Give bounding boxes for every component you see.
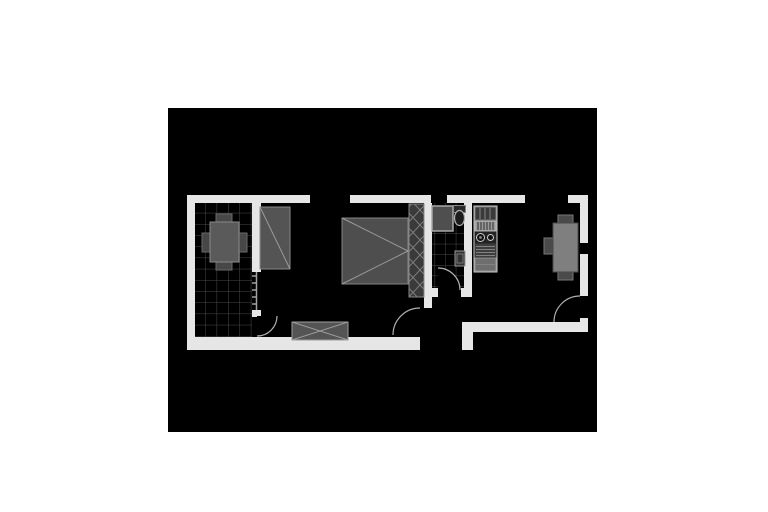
hatched-closet-pattern (409, 204, 424, 297)
terrace-chair-left (202, 233, 210, 252)
dining-chair-bottom (558, 272, 573, 280)
double-bed (342, 218, 408, 284)
oven-drawers (475, 244, 496, 257)
floor-plan-drawing (0, 0, 768, 512)
burner-small (488, 235, 494, 241)
wall-bottom-right (473, 322, 588, 332)
floor-plan-page (0, 0, 768, 512)
wall-bath-bottom-left (424, 288, 438, 297)
wall-bath-kitchen (464, 203, 472, 292)
dining-chair-top (558, 215, 573, 223)
dining-chair-left (544, 238, 553, 254)
wall-corner-stub (580, 318, 588, 332)
vent-shaft-marker (431, 191, 447, 203)
fridge (475, 207, 496, 220)
burner-large-center (479, 236, 482, 239)
dining-table (553, 223, 578, 272)
kitchen-window (525, 195, 568, 203)
right-wall-vent (580, 243, 588, 254)
terrace-chair-top (216, 214, 232, 222)
wall-left (187, 203, 195, 350)
terrace-chair-bottom (216, 262, 232, 270)
wall-bath-bottom-right (461, 288, 472, 297)
wall-jog-stub (462, 322, 473, 350)
kitchen-block (474, 206, 497, 272)
washing-machine (432, 206, 453, 231)
toilet-bowl (455, 211, 465, 226)
living-window (310, 195, 350, 203)
wall-terrace-stub (252, 310, 261, 317)
terrace-chair-right (239, 233, 247, 252)
terrace-table (210, 222, 239, 262)
